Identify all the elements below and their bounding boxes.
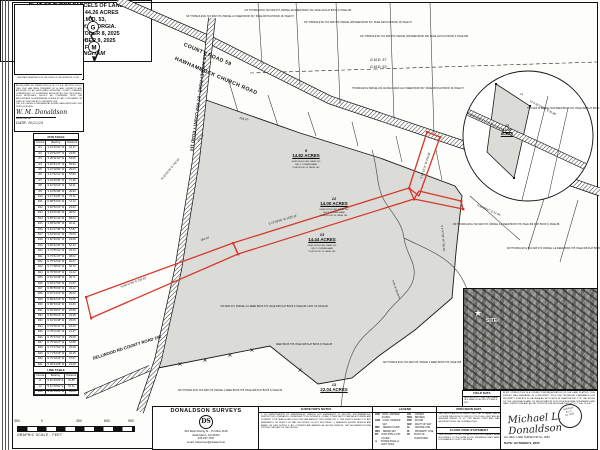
run-table-row: R21 S 73°21'47" W 38.02 xyxy=(35,254,79,259)
bearing-cell: S 61°17'38" W xyxy=(46,227,66,232)
bearing-cell: N 73°27'52" W xyxy=(46,346,66,351)
gmd-boundary-line xyxy=(250,62,597,73)
run-table-row: R12 S 52°40'31" W 29.83 xyxy=(35,205,79,210)
flood-zone-box: FLOOD ZONE STATEMENT THIS PROPERTY IS NO… xyxy=(436,427,502,450)
precision-data-box: PRECISION DATA THE FIELD DATA UPON WHICH… xyxy=(436,406,502,429)
course-cell: L2 xyxy=(35,384,46,389)
gmd-57-label: G.M.D. 57 xyxy=(370,58,386,62)
run-table-row: R6 S 37°02'21" W 57.84 xyxy=(35,173,79,178)
line-table: LINE TABLE Course Bearing Distance L1 S … xyxy=(33,366,79,391)
run-table-row: R36 N 76°37'02" W 35.08 xyxy=(35,335,79,340)
run-table-row: R28 N 87°14'31" W 35.02 xyxy=(35,292,79,297)
distance-cell: 97.41 xyxy=(65,384,78,389)
firm-name: DONALDSON SURVEYS xyxy=(153,408,259,414)
run-table-row: R14 S 56°41'12" W 88.63 xyxy=(35,216,79,221)
legend-box: LEGEND CMF CONC. MARKER FOUND CMS CONC. … xyxy=(372,406,438,450)
bearing-cell: N 86°03'44" W xyxy=(46,303,66,308)
bearing-cell: S 26°22'07" W xyxy=(46,151,66,156)
scale-tick: 900 xyxy=(128,419,134,423)
legend-desc: POWER POLE w/ LIGHT POLE xyxy=(381,441,404,448)
run-table-row: R30 N 86°03'44" W 31.83 xyxy=(35,303,79,308)
run-table-row: R7 S 39°45'56" W 71.48 xyxy=(35,178,79,183)
precision-body: THE FIELD DATA UPON WHICH THIS PLAT IS B… xyxy=(437,413,501,424)
run-table-row: R13 S 54°06'46" W 38.52 xyxy=(35,211,79,216)
run-table-row: R3 S 28°11'52" W 53.05 xyxy=(35,157,79,162)
bearing-cell: N 83°27'54" W xyxy=(46,281,66,286)
inset-detail-circle xyxy=(463,71,593,201)
bearing-cell: S 54°06'46" W xyxy=(46,211,66,216)
svg-text:G: G xyxy=(91,26,96,32)
run-table-row: R8 S 42°10'14" W 63.21 xyxy=(35,184,79,189)
bearing-cell: N 77°08'52" W xyxy=(46,265,66,270)
run-table-row: R38 N 73°27'52" W 25.08 xyxy=(35,346,79,351)
recording-certificate: AS REQUIRED BY SUBSECTION (d) OF O.C.G.A… xyxy=(14,83,84,132)
run-table-row: R26 N 83°27'54" W 41.87 xyxy=(35,281,79,286)
clerk-caption: THIS SPACE RESERVED FOR THE CLERK OF THE… xyxy=(14,74,82,81)
bearing-cell: S 70°55'13" W xyxy=(46,249,66,254)
legend-item: ⊙ POWER POLE w/ LIGHT POLE xyxy=(375,441,404,448)
bearing-cell: N 87°14'31" W xyxy=(46,292,66,297)
adjoiner-note: N/F THOMAS ETAL TAX MAP 073, PARCEL 206 … xyxy=(360,36,468,39)
legend-abbrev: CMS xyxy=(375,420,382,427)
approval-signature: W. M. Donaldson xyxy=(16,109,82,117)
bearing-cell: N 79°46'11" W xyxy=(46,324,66,329)
flood-body: THIS PROPERTY IS NOT LOCATED IN A FLOOD … xyxy=(437,434,501,443)
line-table-body: L1 S 62°20'29" E 91.85 L2 S 67°40'54" E … xyxy=(35,379,78,390)
bearing-cell: N 79°36'15" W xyxy=(46,270,66,275)
scale-tick: 300 xyxy=(14,419,20,423)
run-table-row: R17 S 63°49'41" W 76.63 xyxy=(35,232,79,237)
run-table-row: R9 S 44°52'08" W 39.96 xyxy=(35,189,79,194)
bearing-cell: S 39°45'56" W xyxy=(46,178,66,183)
adjoiner-note: N/F THOMAS ETAL TAX MAP 073, PARCEL 2-E … xyxy=(507,248,600,251)
run-table-row: R35 N 78°11'36" W 21.47 xyxy=(35,330,79,335)
gmd-line-symbol: G M xyxy=(88,16,100,62)
run-table-row: R31 N 84°29'57" W 25.89 xyxy=(35,308,79,313)
adjoiner-note: N/F THOMAS ETAL TAX MAP 073, PARCEL 205 … xyxy=(304,22,412,25)
bearing-cell: S 30°54'47" W xyxy=(46,162,66,167)
scale-tick: 600 xyxy=(104,419,110,423)
run-table-row: R16 S 61°17'38" W 57.87 xyxy=(35,227,79,232)
run-table-row: R18 S 66°30'02" W 43.08 xyxy=(35,238,79,243)
run-table-row: R1 S 24°10'31" W 42.17 xyxy=(35,146,79,151)
dellwood-road-band xyxy=(85,368,150,396)
surveyor-firm-box: DONALDSON SURVEYS DS 616 West Moring St.… xyxy=(152,406,260,450)
plat-sheet: G M COUNTY ROAD 59 HAWHAMMOCK CHURCH ROA… xyxy=(0,0,600,450)
run-table-row: R24 N 79°36'15" W 41.22 xyxy=(35,270,79,275)
run-table-body: R1 S 24°10'31" W 42.17 R2 S 26°22'07" W … xyxy=(35,146,79,395)
bearing-cell: S 28°11'52" W xyxy=(46,157,66,162)
bearing-cell: N 89°42'16" W xyxy=(46,297,66,302)
legend-item: PC POINT OF CURVATURE xyxy=(407,434,436,441)
bearing-cell: S 37°02'21" W xyxy=(46,173,66,178)
bearing-cell: S 63°49'41" W xyxy=(46,232,66,237)
remaining-parcel-label: 13 22.04 ACRES (REMAINING PARCEL 13) xyxy=(320,382,347,395)
line-table-row: L2 S 67°40'54" E 97.41 xyxy=(35,384,78,389)
run-table-row: R11 N 88°51'04" W 74.12 xyxy=(35,200,79,205)
graphic-scale-bar xyxy=(17,426,135,432)
parcel-12-label: 12 14.00 ACRES TAX MAP 073, PARCEL 12 DE… xyxy=(320,196,349,217)
notes-body: 1. NO INVESTIGATION OR INDEPENDENT SEARC… xyxy=(259,413,373,432)
run-table-row: R39 N 71°53'18" W 34.45 xyxy=(35,351,79,356)
bearing-cell: S 42°10'14" W xyxy=(46,184,66,189)
adjoiner-note: N/F THOMAS ETAL TAX MAP 073, PARCEL 3 DE… xyxy=(383,362,461,365)
vicinity-aerial-map xyxy=(463,288,598,390)
adjoiner-note: N/F THOMAS ETAL TAX MAP 073, PARCEL 2-D … xyxy=(453,224,560,227)
field-data-body: FIELD WORK BY TOTAL STATION AND GPS. DAT… xyxy=(463,397,501,405)
run-table: RUN TABLE Course Bearing Distance R1 S 2… xyxy=(33,133,79,396)
bearing-cell: S 44°52'08" W xyxy=(46,189,66,194)
bearing-cell: N 70°18'43" W xyxy=(46,357,66,362)
bearing-cell: N 81°20'48" W xyxy=(46,319,66,324)
bearing-cell: S 66°30'02" W xyxy=(46,238,66,243)
firm-logo: DS xyxy=(199,415,213,429)
bearing-cell: S 58°02'55" W xyxy=(46,222,66,227)
legend-desc: POINT OF CURVATURE xyxy=(414,434,436,441)
run-table-row: R19 S 68°12'26" W 60.44 xyxy=(35,243,79,248)
bearing-cell: S 24°10'31" W xyxy=(46,146,66,151)
legend-item: IPF IRON PIPE or PIN FOUND xyxy=(375,434,404,441)
svg-text:M: M xyxy=(92,46,97,52)
bearing-cell: S 62°20'29" E xyxy=(46,379,65,384)
scale-caption: GRAPHIC SCALE - FEET xyxy=(17,433,62,437)
parcel-refs: TAX MAP 073, PARCEL 13 DEED BOOK 480, PA… xyxy=(308,242,337,253)
bearing-cell: S 68°12'26" W xyxy=(46,243,66,248)
bearing-cell: N 88°51'04" W xyxy=(46,200,66,205)
bearing-cell: N 76°37'02" W xyxy=(46,335,66,340)
bearing-cell: S 52°40'31" W xyxy=(46,205,66,210)
run-table-row: R40 N 70°18'43" W 37.67 xyxy=(35,357,79,362)
legend-right-column: O/S OFFSET BKN BROKEN FND FOUND R/W xyxy=(405,413,437,448)
site-label: SITE xyxy=(486,318,497,324)
run-table-row: R4 S 30°54'47" W 59.84 xyxy=(35,162,79,167)
bearing-cell: N 78°11'36" W xyxy=(46,330,66,335)
scale-tick: 0 xyxy=(41,419,43,423)
adjoiner-note: N/F THOMAS ETAL TAX MAP 073, PARCEL 2-C … xyxy=(186,16,294,19)
run-table-row: R33 N 81°20'48" W 25.05 xyxy=(35,319,79,324)
bearing-cell: S 73°21'47" W xyxy=(46,254,66,259)
certification-text: IN MY OPINION THIS IS A CORRECT REPRESEN… xyxy=(501,391,597,407)
adjoiner-note: THOMAS ETAL PARCEL 204 JACKIE DUKES LILL… xyxy=(352,88,464,91)
scale-tick: 300 xyxy=(76,419,82,423)
firm-email: email: wdsurveys@pineland.net xyxy=(153,441,259,445)
bearing-cell: N 84°29'57" W xyxy=(46,308,66,313)
run-table-row: R15 S 58°02'55" W 40.21 xyxy=(35,222,79,227)
legend-abbrev: CMF xyxy=(375,414,382,421)
bearing-label: L1 xyxy=(520,92,523,96)
parcel-acreage: 14.00 ACRES xyxy=(501,128,514,137)
parcel-13-label: 13 14.44 ACRES TAX MAP 073, PARCEL 13 DE… xyxy=(308,232,337,253)
parcel-refs: TAX MAP 073, PARCEL 9 DEED BOOK 480, PAG… xyxy=(292,158,321,169)
clerk-reserved-box xyxy=(14,4,84,80)
run-table-row: R23 N 77°08'52" W 56.79 xyxy=(35,265,79,270)
certification-date: DATE: OCTOBER 9, 2025 xyxy=(504,441,540,445)
parcel-refs: TAX MAP 073, PARCEL 12 DEED BOOK 480, PA… xyxy=(320,206,349,217)
certificate-text: AS REQUIRED BY SUBSECTION (d) OF O.C.G.A… xyxy=(16,85,82,108)
run-table-row: R34 N 79°46'11" W 34.43 xyxy=(35,324,79,329)
gmd-53-label: G.M.D. 53 xyxy=(370,65,386,69)
bearing-cell: N 81°02'38" W xyxy=(46,276,66,281)
adjoiner-note: DEED BOOK 575, PAGE 308 PLAT BOOK 8, PAG… xyxy=(276,344,332,347)
run-table-row: R25 N 81°02'38" W 36.71 xyxy=(35,276,79,281)
adjoiner-note: TAX MAP 073, PARCEL 2-C DEED BOOK 575, P… xyxy=(220,306,327,309)
inset-parcel-label: 12 14.00 ACRES xyxy=(501,124,514,137)
run-table-row: R2 S 26°22'07" W 43.56 xyxy=(35,151,79,156)
site-star-icon: ★ xyxy=(474,308,482,319)
run-table-row: R20 S 70°55'13" W 45.44 xyxy=(35,249,79,254)
parcel-refs: (REMAINING PARCEL 13) xyxy=(320,392,347,395)
bearing-cell: S 67°40'54" E xyxy=(46,384,65,389)
adjoiner-note: N/F THOMAS ETAL TAX MAP 073, PARCEL 2 DE… xyxy=(178,390,282,393)
bearing-cell: S 56°41'12" W xyxy=(46,216,66,221)
approval-date: DATE: 10/22/25 xyxy=(16,121,82,125)
bearing-cell: N 71°53'18" W xyxy=(46,351,66,356)
legend-abbrev: PC xyxy=(407,434,414,441)
adjoiner-note: N/F THOMAS ETAL TAX MAP 073, PARCEL 204 … xyxy=(245,10,352,13)
parcel-9-label: 9 14.82 ACRES TAX MAP 073, PARCEL 9 DEED… xyxy=(292,148,321,169)
adjoiner-note: THIS MAP IS PARCEL MAP DEED BOOK 547, PA… xyxy=(527,108,600,111)
legend-left-column: CMF CONC. MARKER FOUND CMS CONC. MARKER … xyxy=(373,413,405,448)
line-table-row: L1 S 62°20'29" E 91.85 xyxy=(35,379,78,384)
run-table-row: R29 N 89°42'16" W 54.68 xyxy=(35,297,79,302)
surveyor-notes-box: SURVEYOR'S NOTES 1. NO INVESTIGATION OR … xyxy=(258,406,374,450)
surveyor-registration: GA. REG. LAND SURVEYOR No. 2693 xyxy=(504,436,550,439)
legend-desc: IRON PIPE or PIN FOUND xyxy=(382,434,404,441)
